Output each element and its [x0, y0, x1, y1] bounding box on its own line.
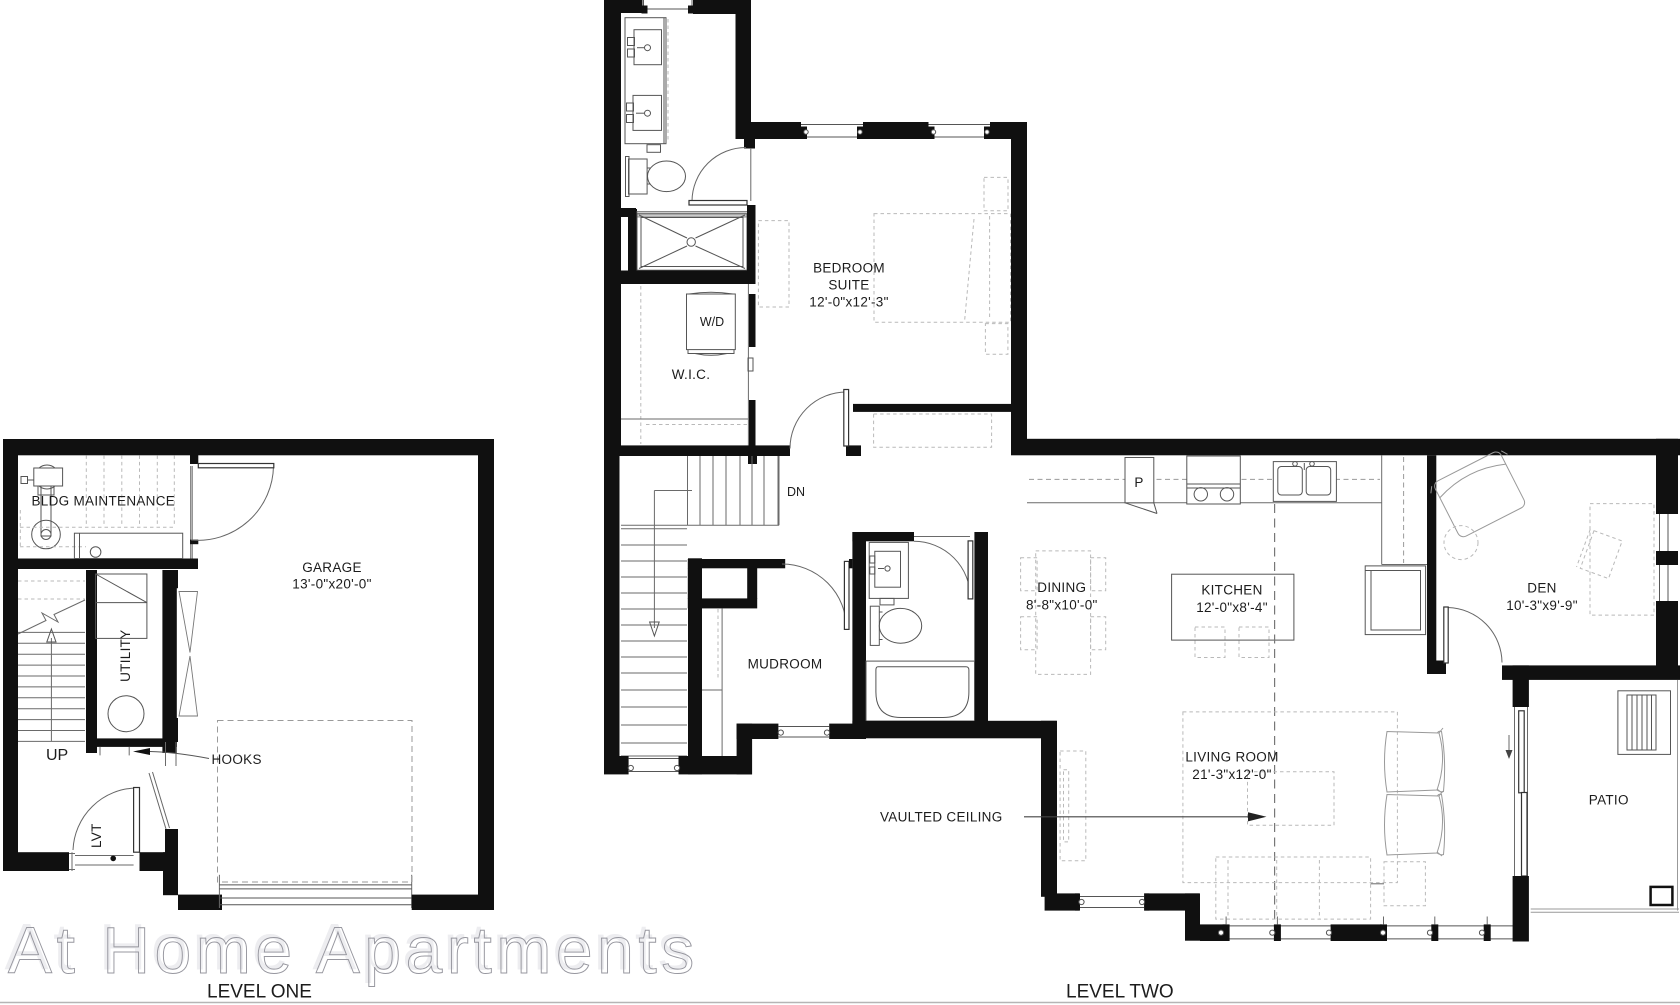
svg-text:W/D: W/D — [700, 315, 724, 329]
svg-text:DEN: DEN — [1527, 581, 1556, 596]
svg-text:VAULTED CEILING: VAULTED CEILING — [880, 810, 1003, 825]
svg-text:BLDG MAINTENANCE: BLDG MAINTENANCE — [32, 494, 176, 509]
svg-text:8'-8"x10'-0": 8'-8"x10'-0" — [1026, 598, 1098, 613]
svg-text:21'-3"x12'-0": 21'-3"x12'-0" — [1192, 767, 1271, 782]
svg-text:13'-0"x20'-0": 13'-0"x20'-0" — [292, 577, 371, 592]
svg-text:12'-0"x12'-3": 12'-0"x12'-3" — [809, 295, 888, 310]
svg-text:DN: DN — [787, 485, 805, 499]
svg-text:10'-3"x9'-9": 10'-3"x9'-9" — [1506, 598, 1578, 613]
svg-text:BEDROOM: BEDROOM — [813, 261, 885, 276]
svg-text:LIVING ROOM: LIVING ROOM — [1185, 750, 1278, 765]
svg-text:W.I.C.: W.I.C. — [672, 367, 711, 382]
svg-text:UTILITY: UTILITY — [118, 630, 133, 682]
svg-text:MUDROOM: MUDROOM — [748, 657, 823, 672]
svg-text:12'-0"x8'-4": 12'-0"x8'-4" — [1196, 600, 1268, 615]
svg-text:HOOKS: HOOKS — [212, 752, 262, 767]
svg-text:P: P — [1134, 475, 1143, 490]
svg-text:LVT: LVT — [89, 823, 104, 848]
svg-text:DINING: DINING — [1037, 580, 1086, 595]
svg-text:LEVEL ONE: LEVEL ONE — [207, 982, 312, 1003]
svg-text:GARAGE: GARAGE — [302, 560, 362, 575]
svg-text:At Home Apartments: At Home Apartments — [8, 913, 699, 987]
svg-text:SUITE: SUITE — [828, 278, 869, 293]
svg-text:LEVEL TWO: LEVEL TWO — [1066, 982, 1174, 1003]
svg-text:UP: UP — [46, 747, 68, 764]
svg-text:KITCHEN: KITCHEN — [1201, 583, 1262, 598]
svg-text:PATIO: PATIO — [1589, 793, 1629, 808]
